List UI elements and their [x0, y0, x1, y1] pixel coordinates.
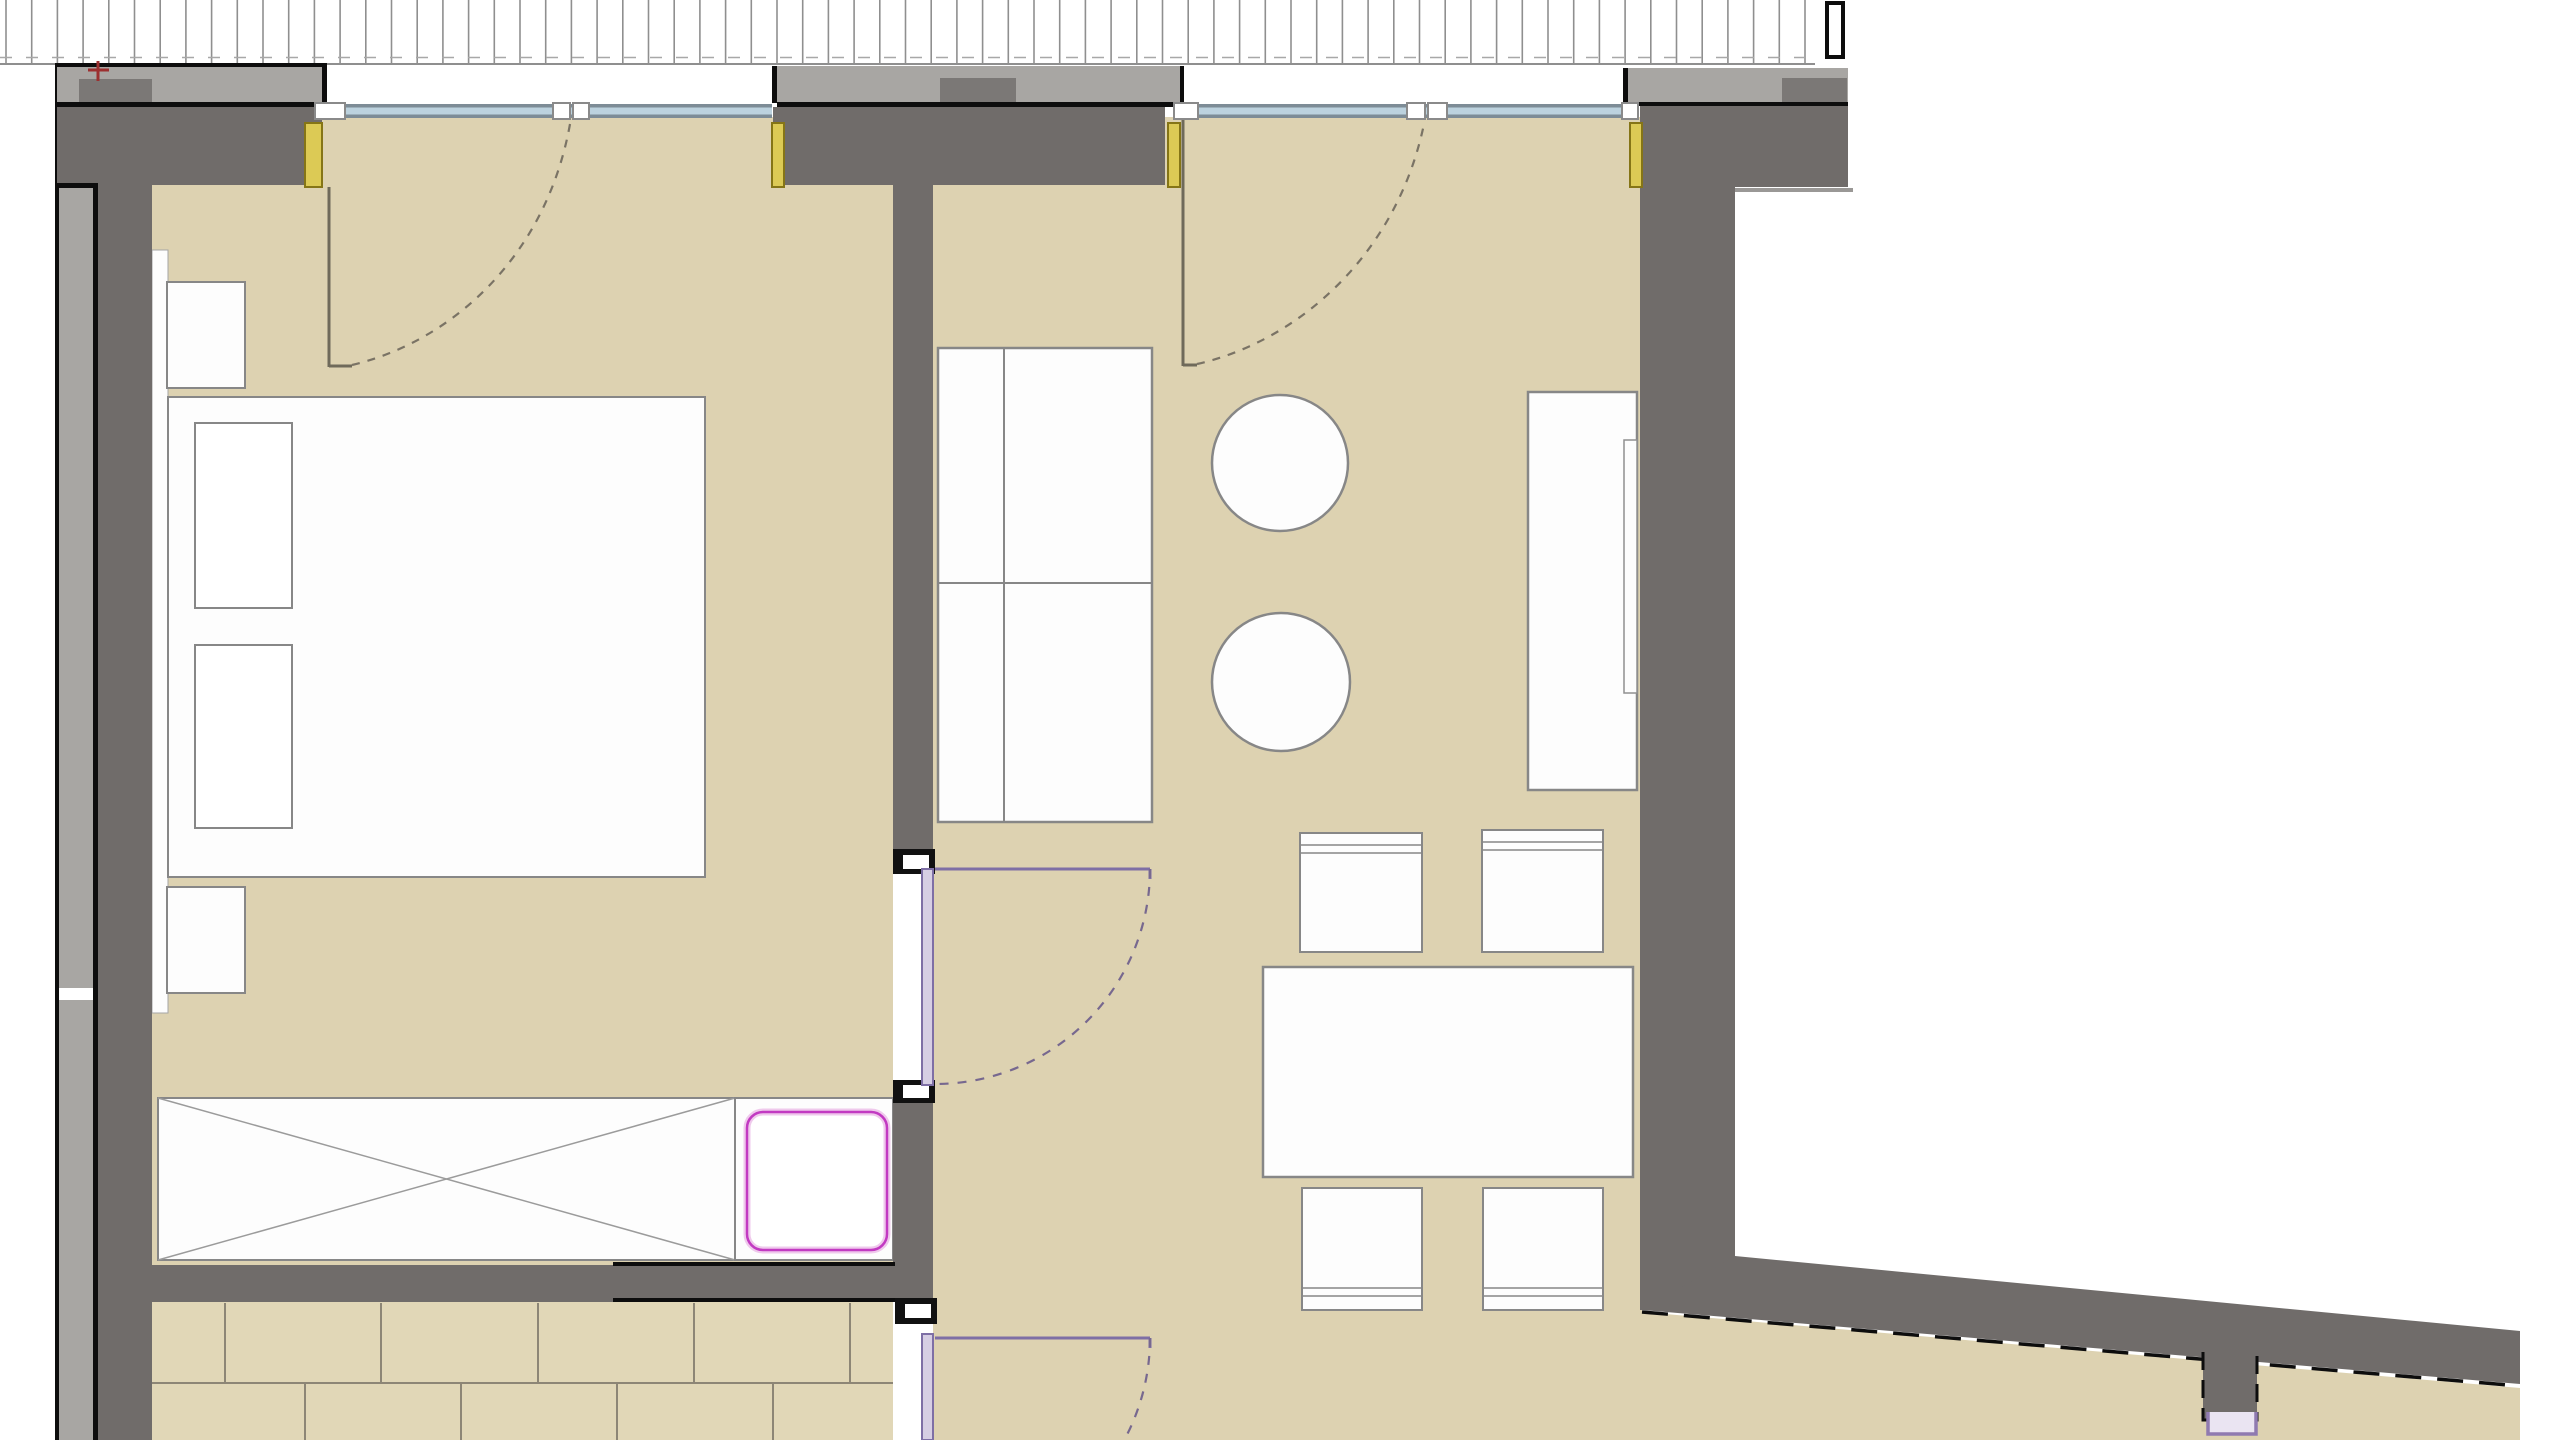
door-hinge-block-center — [905, 1304, 931, 1318]
survey-marker — [1827, 3, 1843, 57]
corner-wall-block — [57, 107, 322, 185]
nightstand — [167, 887, 245, 993]
window-jamb — [1622, 103, 1638, 119]
nightstand — [167, 282, 245, 388]
sideboard-inner-panel — [1624, 440, 1637, 693]
round-pouf — [1212, 613, 1350, 751]
round-pouf — [1212, 395, 1348, 531]
right-wall — [1640, 187, 1735, 1310]
right-parapet-left-edge — [1623, 68, 1628, 103]
floor-plan-canvas — [0, 0, 2560, 1440]
left-wall — [98, 185, 152, 1440]
south-band-bottom-edge — [613, 1298, 895, 1302]
sideboard — [1528, 392, 1637, 790]
gate-bracket — [2208, 1412, 2256, 1434]
hall-cabinet — [938, 348, 1152, 822]
door-jamb-yellow — [1630, 123, 1642, 187]
angled-wall-stub — [2203, 1348, 2257, 1420]
floor-plan — [0, 0, 2560, 1440]
chair — [1302, 1188, 1422, 1310]
pillow — [195, 645, 292, 828]
corner-parapet-right-edge — [322, 63, 327, 103]
window-mullion — [573, 103, 589, 119]
door-hinge-block-center — [903, 1085, 929, 1098]
left-wall-outer-layer — [59, 63, 93, 1440]
top-right-shadow-line — [1735, 188, 1853, 192]
partition-wall-lower — [893, 1102, 933, 1300]
chair — [1482, 830, 1603, 952]
window-mullion — [553, 103, 570, 119]
pier-wall — [773, 107, 1165, 185]
door-jamb-yellow — [772, 123, 784, 187]
chair — [1300, 833, 1422, 952]
partition-wall-upper — [893, 183, 933, 853]
corner-step-edge — [55, 183, 98, 188]
south-wall-band — [152, 1265, 895, 1302]
window-jamb — [315, 103, 345, 119]
window-jamb — [1174, 103, 1198, 119]
hall-door-leaf-closed — [922, 869, 933, 1085]
left-wall-joint-notch — [59, 988, 93, 1000]
pillow — [195, 423, 292, 608]
chair — [1483, 1188, 1603, 1310]
door-jamb-yellow — [1168, 123, 1180, 187]
pier-parapet-left-edge — [772, 66, 777, 103]
dining-table — [1263, 967, 1633, 1177]
door-jamb-yellow — [305, 123, 322, 187]
right-parapet-bottom-edge — [1628, 102, 1848, 106]
corner-parapet-bottom-edge — [57, 102, 328, 107]
shower-tray-halo — [747, 1112, 887, 1250]
window-mullion — [1407, 103, 1425, 119]
left-wall-outer-edge — [55, 63, 59, 1440]
south-band-top-edge — [613, 1262, 895, 1266]
pier-parapet-right-edge — [1180, 66, 1184, 107]
corner-parapet-inner-block — [79, 79, 152, 102]
corner-parapet-top-edge — [55, 63, 327, 67]
pier-parapet-bottom-edge — [777, 102, 1180, 107]
window-mullion — [1428, 103, 1447, 119]
right-parapet-inner-block — [1782, 78, 1847, 103]
pier-parapet-inner-block — [940, 78, 1016, 102]
top-right-wall — [1640, 106, 1848, 187]
door-hinge-block-center — [903, 855, 929, 869]
left-wall-inner-edge — [93, 185, 98, 1440]
bed-alcove-strip — [152, 250, 168, 1013]
terrace-tile-floor — [152, 1302, 893, 1440]
hall-door2-leaf-closed — [922, 1334, 933, 1440]
